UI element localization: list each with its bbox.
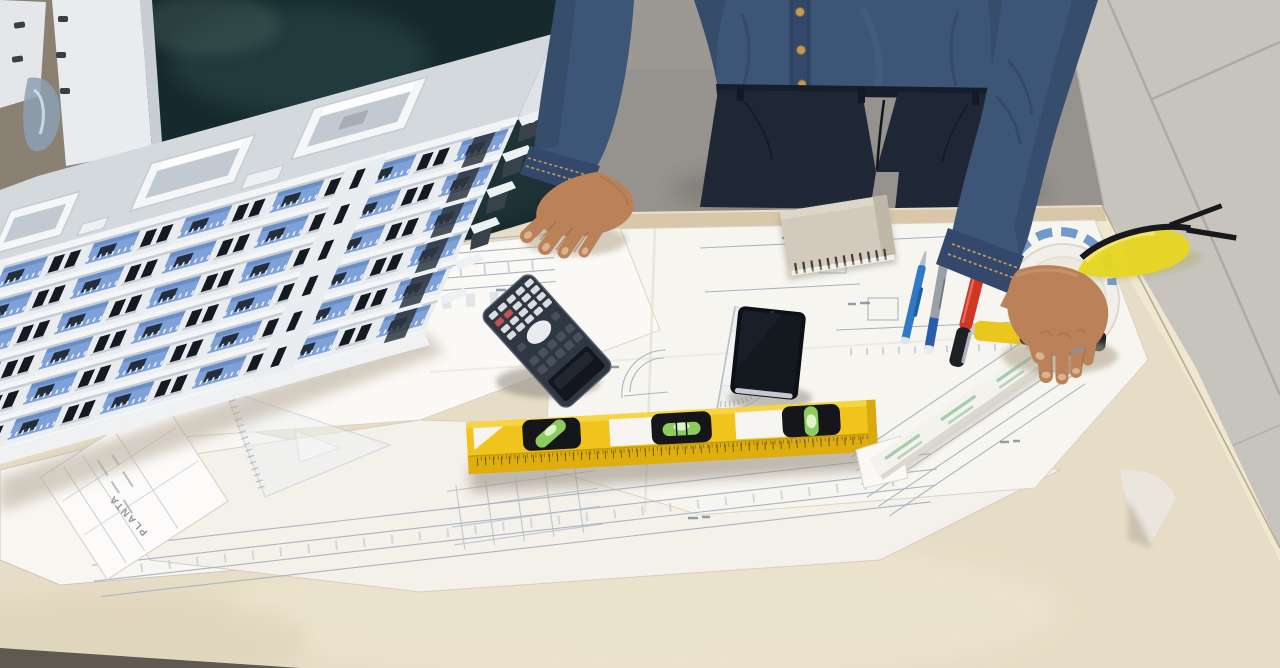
level-open-window (735, 410, 788, 440)
photo-canvas: PLANTA (0, 0, 1280, 668)
denim-shirt (694, 0, 1020, 90)
level-vial-horizontal (651, 411, 713, 445)
architect-workspace-photo: PLANTA (0, 0, 1280, 668)
trouser-left-leg (700, 90, 876, 209)
white-slab-pillar (52, 0, 152, 166)
level-vial-vertical (781, 404, 841, 438)
level-vial-angled (522, 416, 582, 452)
smartphone[interactable] (728, 306, 812, 410)
finger (1088, 338, 1092, 360)
